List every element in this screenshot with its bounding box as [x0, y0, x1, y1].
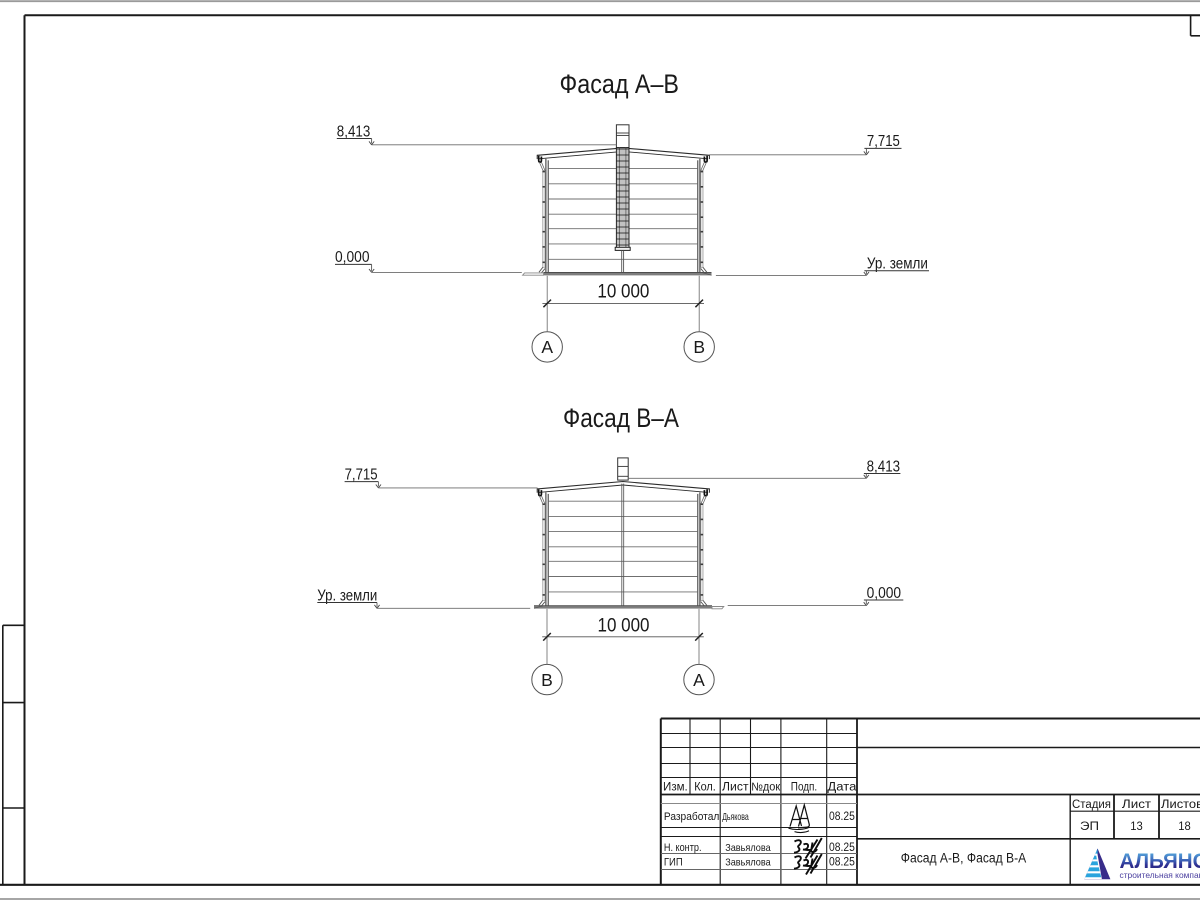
svg-text:Лист: Лист	[1122, 799, 1152, 811]
svg-text:10 000: 10 000	[597, 282, 649, 303]
svg-text:Фасад В–А: Фасад В–А	[563, 403, 679, 433]
svg-text:Разработал: Разработал	[664, 811, 719, 823]
svg-text:Дьякова: Дьякова	[722, 811, 749, 823]
svg-text:08.25: 08.25	[829, 857, 855, 869]
svg-text:В: В	[541, 670, 553, 690]
svg-text:Лист: Лист	[722, 781, 749, 793]
svg-text:строительная компания: строительная компания	[1120, 871, 1200, 880]
svg-text:Подп.: Подп.	[791, 781, 817, 793]
svg-text:АЛЬЯНС: АЛЬЯНС	[1120, 849, 1200, 873]
svg-text:8,413: 8,413	[337, 123, 371, 140]
svg-text:Дата: Дата	[827, 781, 857, 793]
svg-text:0,000: 0,000	[867, 585, 902, 602]
svg-text:Фасад А–В: Фасад А–В	[560, 69, 680, 99]
svg-text:Ур. земли: Ур. земли	[867, 256, 928, 273]
svg-text:Завьялова: Завьялова	[725, 857, 771, 869]
svg-text:В: В	[693, 337, 705, 357]
svg-text:Завьялова: Завьялова	[725, 842, 771, 854]
svg-text:Н. контр.: Н. контр.	[664, 842, 702, 854]
svg-text:8,413: 8,413	[867, 458, 901, 475]
svg-text:Листов: Листов	[1161, 799, 1200, 811]
svg-text:Фасад А-В, Фасад В-А: Фасад А-В, Фасад В-А	[901, 851, 1027, 866]
svg-text:А: А	[541, 337, 553, 357]
svg-text:Изм.: Изм.	[663, 781, 688, 793]
svg-text:08.25: 08.25	[829, 811, 855, 823]
svg-text:Кол.: Кол.	[694, 781, 716, 793]
svg-text:№док: №док	[751, 781, 781, 793]
svg-text:10 000: 10 000	[598, 615, 650, 636]
svg-text:0,000: 0,000	[335, 249, 370, 266]
svg-text:Стадия: Стадия	[1072, 799, 1111, 811]
svg-text:18: 18	[1178, 819, 1191, 833]
svg-text:Ур. земли: Ур. земли	[317, 587, 377, 604]
svg-text:7,715: 7,715	[867, 133, 900, 150]
svg-text:08.25: 08.25	[829, 842, 855, 854]
svg-text:13: 13	[1130, 819, 1143, 833]
svg-text:ЭП: ЭП	[1080, 819, 1099, 833]
svg-text:7,715: 7,715	[345, 466, 378, 483]
svg-text:ГИП: ГИП	[664, 857, 683, 869]
svg-text:А: А	[693, 670, 705, 690]
